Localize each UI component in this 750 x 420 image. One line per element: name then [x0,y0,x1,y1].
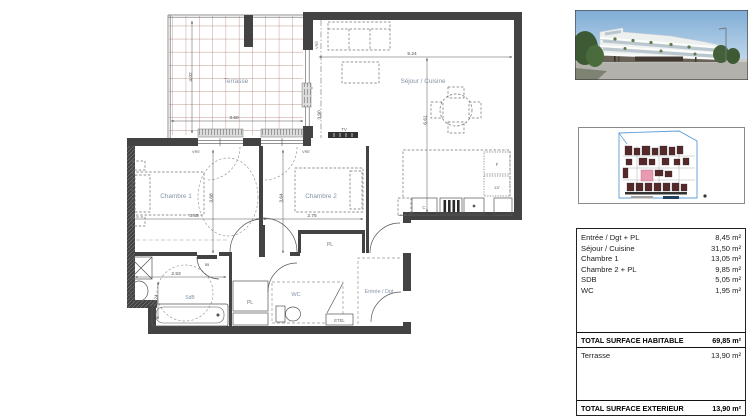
site-plan-graphic [579,128,744,203]
total-exterieur-label: TOTAL SURFACE EXTERIEUR [581,404,684,413]
table-row: Séjour / Cuisine 31,50 m² [577,244,745,255]
total-habitable-label: TOTAL SURFACE HABITABLE [581,336,684,345]
row-label: Terrasse [581,351,610,362]
label-sejour: Séjour / Cuisine [400,78,446,85]
label-tv: TV [341,127,347,132]
row-value: 31,50 m² [711,244,741,255]
dim-chambre2-h: 3.64 [279,193,285,203]
interior-walls [135,146,369,326]
row-label: Chambre 1 [581,254,619,265]
window-swing-arcs [207,147,297,180]
label-entree: Entrée / Dgt [365,289,394,295]
dim-terrasse-w: 3.50 [229,115,239,121]
table-row: Chambre 2 + PL 9,85 m² [577,265,745,276]
dim-sejour-h: 6.61 [423,115,429,125]
label-chambre2: Chambre 2 [305,193,337,200]
table-row: Entrée / Dgt + PL 8,45 m² [577,233,745,244]
table-row: SDB 5,05 m² [577,275,745,286]
surface-rows: Entrée / Dgt + PL 8,45 m² Séjour / Cuisi… [577,229,745,297]
dim-chambre1-w: 3.55 [189,213,199,219]
building-render-graphic [575,10,748,80]
row-value: 13,05 m² [711,254,741,265]
label-etel: ETEL [334,318,345,323]
row-value: 9,85 m² [715,265,741,276]
table-row: Chambre 1 13,05 m² [577,254,745,265]
row-label: Entrée / Dgt + PL [581,233,639,244]
table-row: Terrasse 13,90 m² [577,351,745,362]
label-chambre1: Chambre 1 [160,193,192,200]
exterior-rows: Terrasse 13,90 m² [577,348,745,364]
label-vre-window1: VRE [192,149,200,154]
label-boiler: C [422,205,425,210]
dim-chambre2-w: 2.75 [307,213,317,219]
total-exterieur-value: 13,90 m² [712,404,741,413]
building-render-photo [575,10,748,80]
row-value: 8,45 m² [715,233,741,244]
surface-table: Entrée / Dgt + PL 8,45 m² Séjour / Cuisi… [576,228,746,416]
label-pl-chambre2: PL [327,242,333,248]
row-label: SDB [581,275,597,286]
total-habitable-row: TOTAL SURFACE HABITABLE 69,85 m² [577,332,745,348]
site-plan-box [578,127,745,204]
table-row: WC 1,95 m² [577,286,745,297]
label-terrasse: Terrasse [224,78,249,85]
label-vre-bay: VRE [314,41,319,49]
row-value: 5,05 m² [715,275,741,286]
dim-sdb-door: 55 [205,262,210,267]
dim-sdb-h: 2.24 [154,294,160,304]
dim-chambre1-h: 3.68 [209,193,215,203]
row-label: Séjour / Cuisine [581,244,635,255]
row-label: WC [581,286,594,297]
highlighted-unit [641,170,653,181]
row-value: 13,90 m² [711,351,741,362]
total-habitable-value: 69,85 m² [712,336,741,345]
floorplan-sheet: { "plan": { "labels": { "terrasse": "Ter… [0,0,750,420]
turning-circles [157,158,258,321]
dim-bay-h: 3.90 [317,110,323,120]
dim-terrasse-h: 4.02 [188,72,194,82]
dim-sejour-w: 5.24 [407,51,417,57]
label-dishwasher: LV [494,185,499,190]
total-exterieur-row: TOTAL SURFACE EXTERIEUR 13,90 m² [577,400,745,415]
floor-plan-drawing: 4.02 3.50 5.24 6.61 3.90 3.55 2.75 3.68 … [0,0,565,420]
label-pl-hall: PL [247,300,253,306]
row-label: Chambre 2 + PL [581,265,637,276]
label-fridge: F [496,162,499,167]
label-sdb: SdB [185,295,195,301]
label-vre-window2: VRE [302,149,310,154]
label-wc: WC [291,292,300,298]
dim-sdb-w: 2.53 [171,271,181,277]
row-value: 1,95 m² [715,286,741,297]
north-marker [703,194,706,197]
